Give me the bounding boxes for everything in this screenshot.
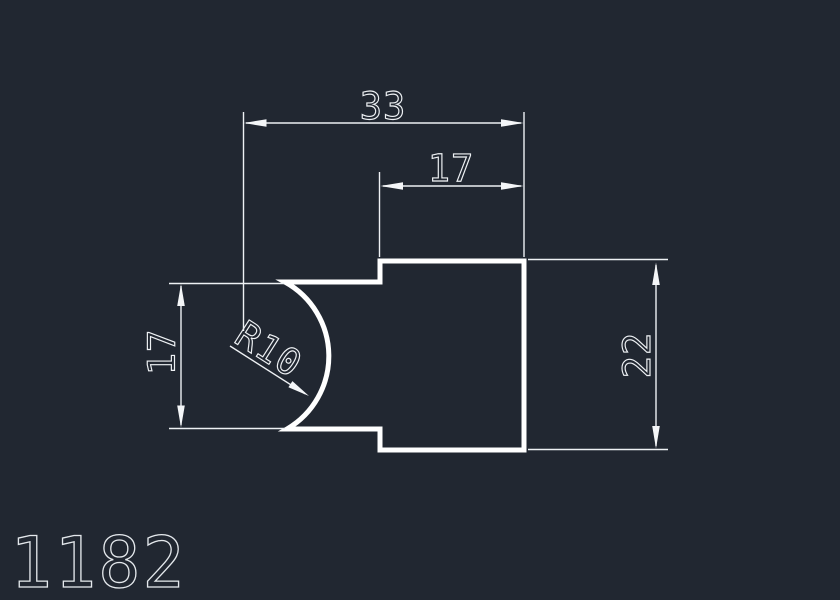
dim-label-upper-width: 17	[428, 147, 475, 190]
dim-label-right-height: 22	[616, 332, 659, 379]
dim-label-left-height: 17	[141, 329, 184, 376]
part-number: 1182	[10, 522, 187, 600]
cad-drawing: 33 17 22 17	[0, 0, 840, 600]
drawing-viewport: 33 17 22 17	[0, 0, 840, 600]
dim-label-total-width: 33	[360, 85, 407, 128]
canvas-background	[0, 0, 840, 600]
